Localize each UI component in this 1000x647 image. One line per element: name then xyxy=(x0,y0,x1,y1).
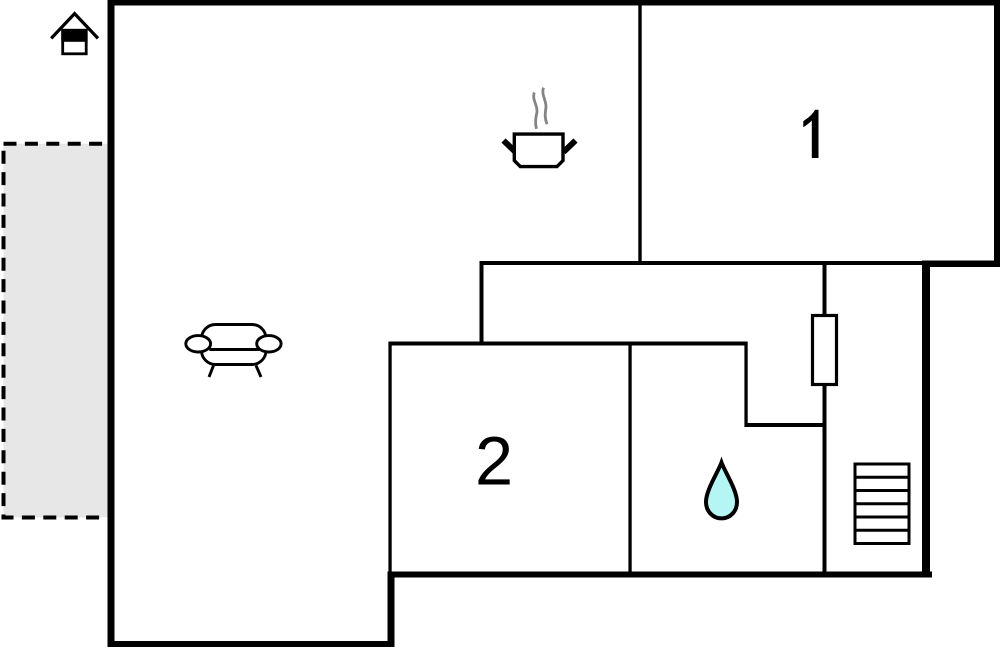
svg-text:2: 2 xyxy=(475,423,513,500)
